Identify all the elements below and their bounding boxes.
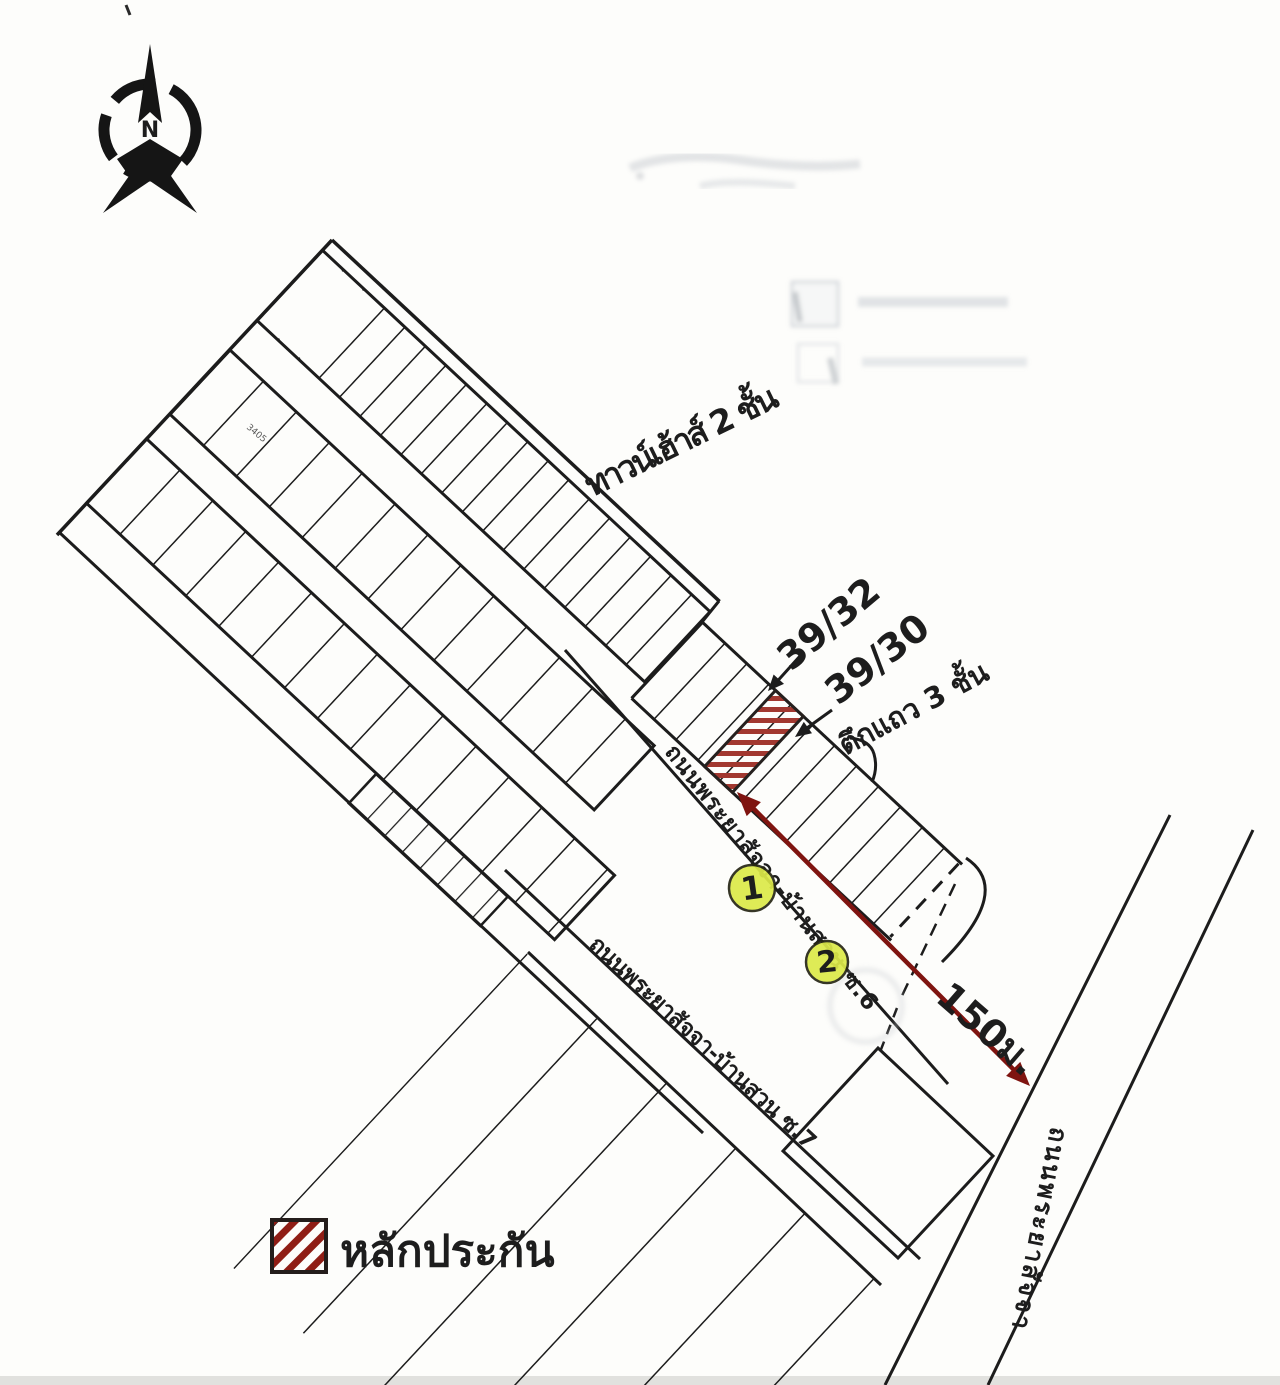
legend-collateral-label: หลักประกัน — [340, 1226, 555, 1277]
sketch-map-page: N 3405 — [0, 0, 1280, 1385]
marker-circle-2: 2 — [806, 941, 848, 983]
legend-swatch-collateral — [272, 1220, 326, 1272]
sketch-map-canvas: N 3405 — [0, 0, 1280, 1385]
marker-2-label: 2 — [815, 944, 839, 981]
marker-circle-1: 1 — [729, 865, 775, 911]
compass-north-label: N — [141, 118, 159, 143]
legend: หลักประกัน — [272, 1220, 555, 1277]
